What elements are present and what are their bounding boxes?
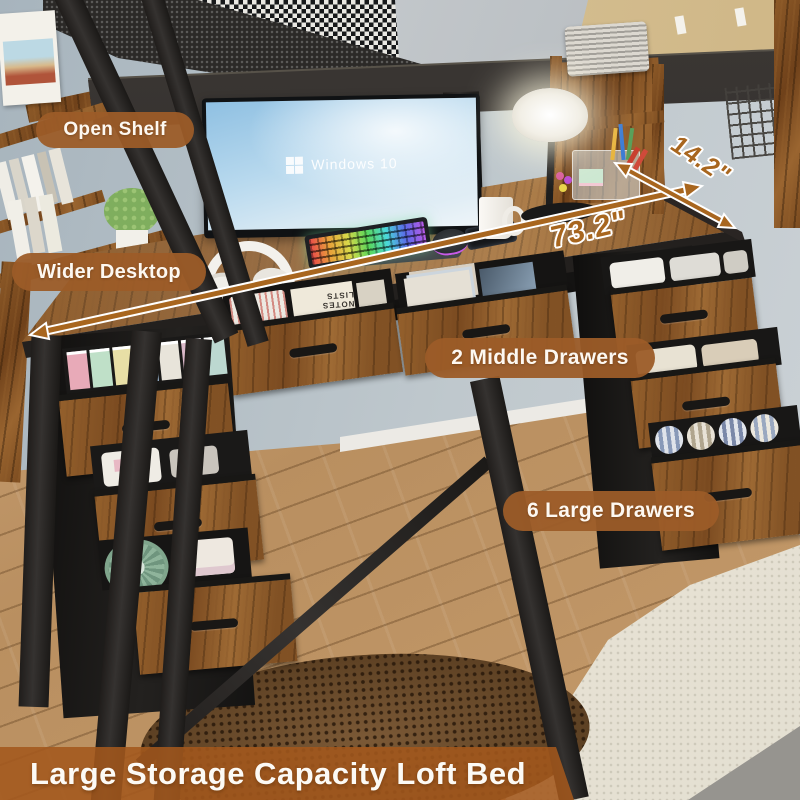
bottom-banner: Large Storage Capacity Loft Bed [0, 747, 576, 800]
left-drawer3-front [132, 573, 297, 674]
callout-label: Wider Desktop [37, 261, 181, 284]
rolled-towel [654, 424, 685, 455]
depth-dimension-label: 14.2" [664, 131, 737, 190]
file-box [66, 350, 90, 390]
callout-open-shelf: Open Shelf [36, 112, 194, 148]
drawer-handle [190, 618, 239, 631]
drawer-handle [682, 396, 731, 411]
mug-handle [502, 206, 526, 236]
banner-title: Large Storage Capacity Loft Bed [30, 756, 526, 792]
monitor: Windows 10 [202, 94, 482, 239]
framed-picture [0, 10, 61, 106]
picture-art [3, 38, 56, 85]
monitor-screen: Windows 10 [206, 98, 478, 231]
flowers [556, 172, 564, 180]
drawer-handle [462, 324, 511, 340]
right-shelf-edge [774, 0, 800, 228]
rolled-towel [749, 413, 780, 444]
rolled-towel [685, 420, 716, 451]
folded-clothes [723, 250, 750, 275]
callout-6-large-drawers: 6 Large Drawers [503, 491, 719, 531]
callout-label: Open Shelf [63, 119, 166, 141]
desk-lamp-shade [512, 88, 588, 142]
monitor-os-label: Windows 10 [311, 155, 398, 173]
file-box [158, 341, 182, 381]
callout-label: 2 Middle Drawers [451, 346, 629, 370]
speaker [564, 21, 649, 77]
drawer-handle [289, 343, 338, 359]
sticky-notes [579, 169, 603, 183]
file-box [89, 348, 113, 388]
callout-2-middle-drawers: 2 Middle Drawers [425, 338, 655, 378]
product-image: Windows 10 NOTES LISTS [0, 0, 800, 800]
callout-label: 6 Large Drawers [527, 499, 695, 523]
hutch-right-stile [652, 64, 664, 214]
coffee-mug [479, 197, 513, 239]
callout-wider-desktop: Wider Desktop [12, 253, 206, 291]
windows-logo-icon [286, 156, 303, 173]
drawer-handle [660, 309, 709, 324]
rolled-towel [717, 416, 748, 447]
